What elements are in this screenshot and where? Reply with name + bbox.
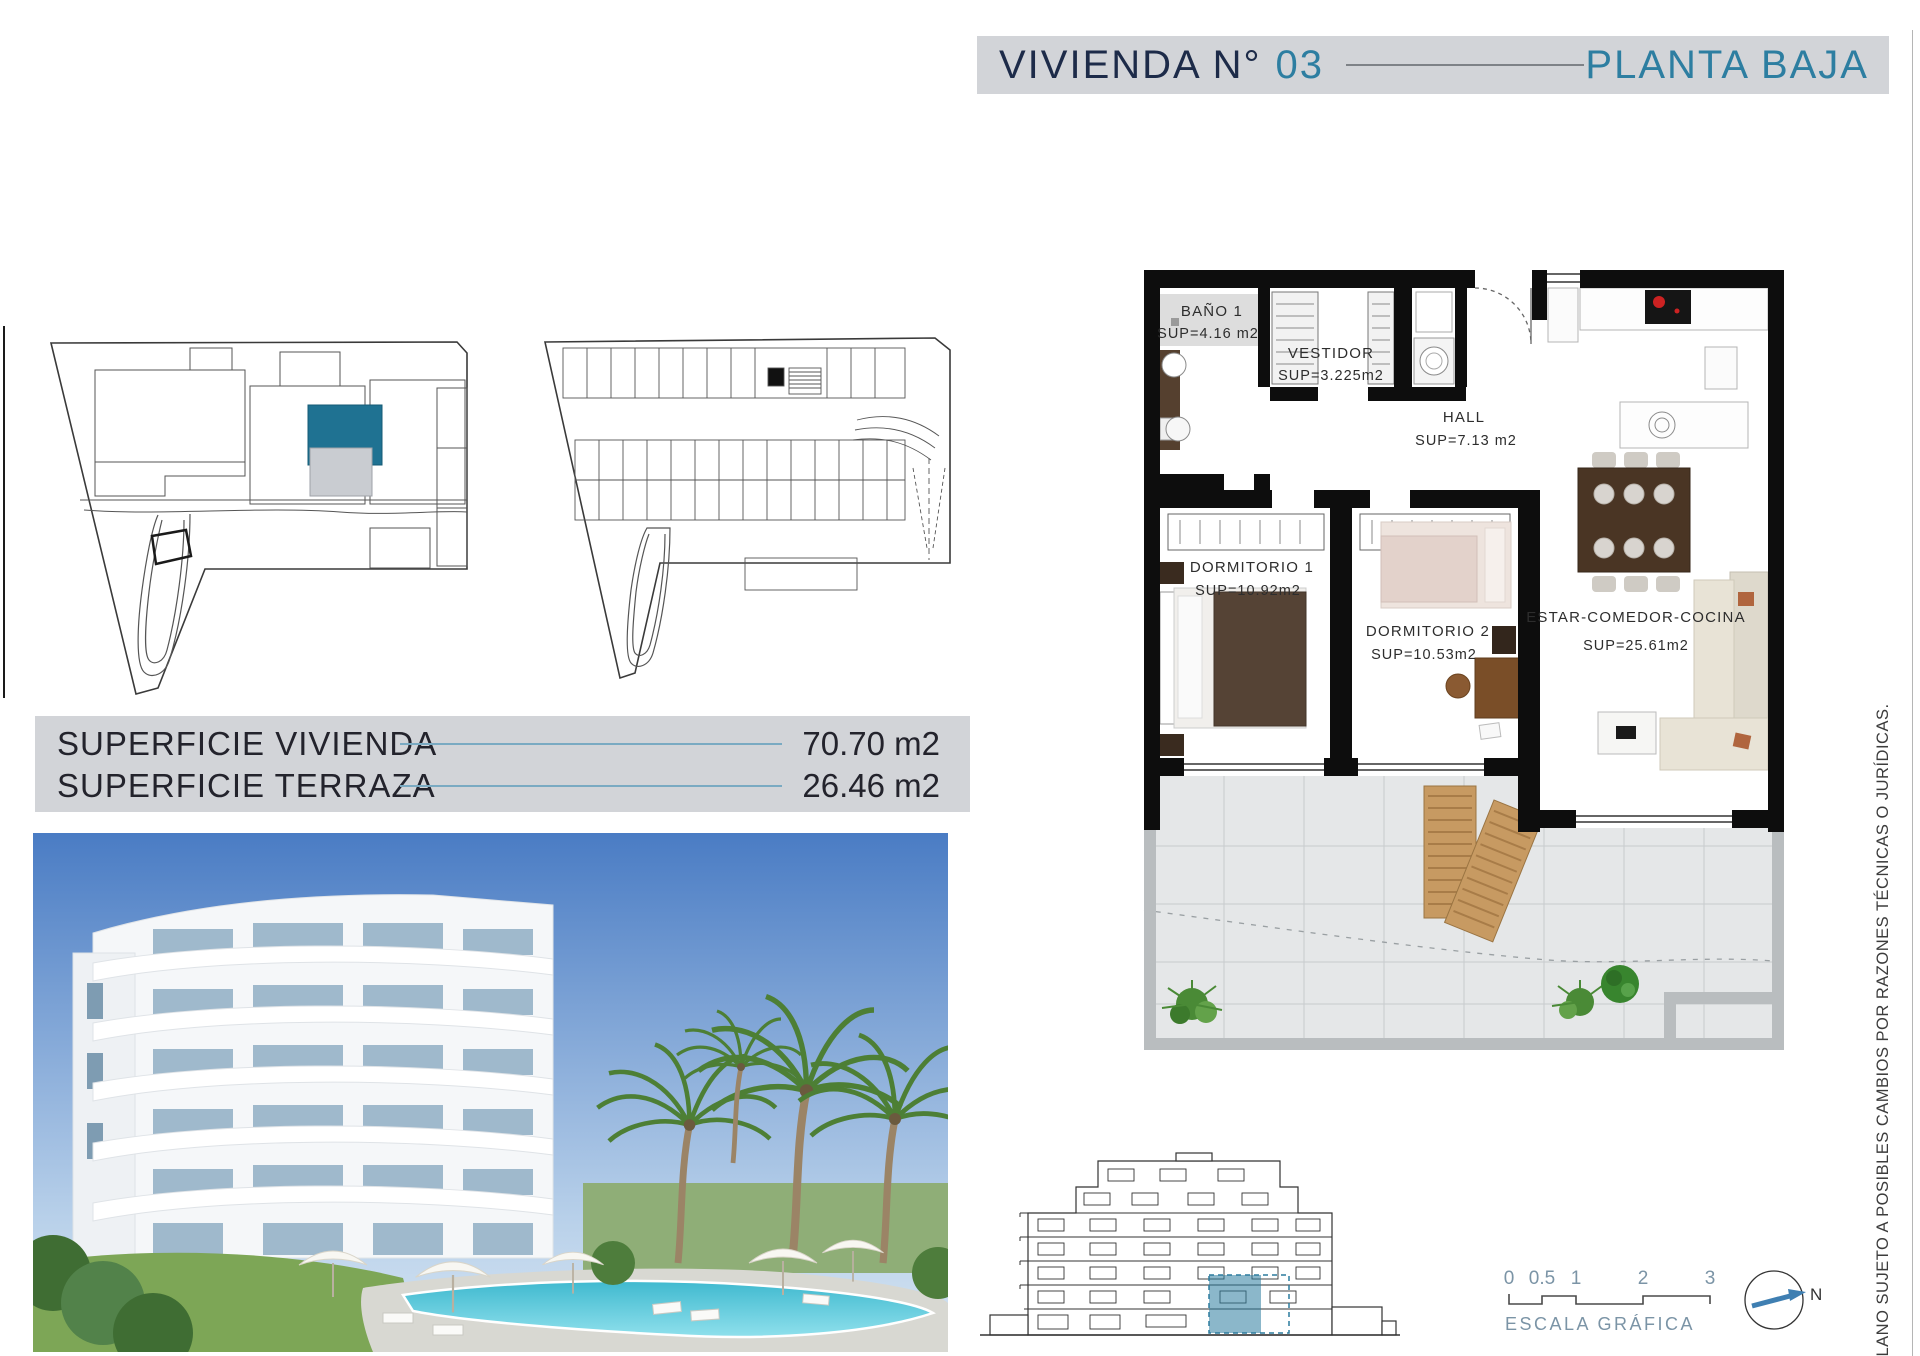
header-bar: VIVIENDA N° 03 PLANTA BAJA — [977, 36, 1889, 94]
scale-label: ESCALA GRÁFICA — [1505, 1314, 1695, 1335]
site-parking-plan — [535, 328, 955, 748]
room-sup-bano1: SUP=4.16 m2 — [1157, 326, 1259, 342]
scale-tick: 3 — [1705, 1268, 1716, 1290]
area-value: 26.46 m2 — [802, 767, 940, 805]
area-value: 70.70 m2 — [802, 725, 940, 763]
room-sup-estar: SUP=25.61m2 — [1583, 638, 1689, 654]
area-label: SUPERFICIE VIVIENDA — [57, 725, 437, 763]
room-label-dorm1: DORMITORIO 1 — [1190, 559, 1314, 576]
render-illustration — [33, 833, 948, 1352]
bedroom-1-furniture — [1160, 514, 1324, 756]
plan-sheet-page: VIVIENDA N° 03 PLANTA BAJA — [0, 0, 1920, 1356]
scale-tick: 0 — [1504, 1268, 1515, 1290]
distant-greenery — [583, 1183, 948, 1273]
page-title: VIVIENDA N° — [999, 43, 1262, 88]
room-label-hall: HALL — [1443, 409, 1485, 426]
north-label: N — [1810, 1285, 1822, 1304]
building-elevation — [980, 1145, 1400, 1356]
site-a-boundary — [51, 342, 467, 694]
scale-tick: 2 — [1638, 1268, 1649, 1290]
building-render-photo — [33, 833, 948, 1352]
scale-tick: 1 — [1571, 1268, 1582, 1290]
dining-set — [1578, 452, 1690, 592]
room-label-bano1: BAÑO 1 — [1181, 303, 1243, 320]
area-label: SUPERFICIE TERRAZA — [57, 767, 436, 805]
room-sup-hall: SUP=7.13 m2 — [1415, 433, 1517, 449]
apartment-building — [73, 895, 553, 1258]
legal-disclaimer: PLANO SUJETO A POSIBLES CAMBIOS POR RAZO… — [1874, 828, 1904, 1356]
page-edge-line-left — [3, 326, 5, 698]
room-sup-dorm1: SUP=10.92m2 — [1195, 583, 1301, 599]
apartment-floor-plan: BAÑO 1 SUP=4.16 m2 VESTIDOR SUP=3.225m2 … — [1128, 262, 1800, 1078]
site-location-plan — [40, 328, 500, 748]
unit-highlight — [1209, 1275, 1261, 1333]
north-compass: N — [1738, 1258, 1834, 1342]
header-divider — [1346, 64, 1584, 66]
site-b-boundary — [545, 338, 950, 678]
unit-number: 03 — [1276, 43, 1325, 88]
room-sup-vestidor: SUP=3.225m2 — [1278, 368, 1384, 384]
area-row-vivienda: SUPERFICIE VIVIENDA 70.70 m2 — [35, 722, 970, 766]
area-row-terraza: SUPERFICIE TERRAZA 26.46 m2 — [35, 764, 970, 808]
area-leader-line — [400, 785, 782, 787]
room-label-vestidor: VESTIDOR — [1288, 345, 1374, 362]
floor-label: PLANTA BAJA — [1585, 43, 1869, 88]
graphic-scale: 0 0.5 1 2 3 ESCALA GRÁFICA — [1505, 1268, 1735, 1348]
room-label-dorm2: DORMITORIO 2 — [1366, 623, 1490, 640]
scale-bar-graphic — [1505, 1292, 1717, 1308]
site-a-buildings — [80, 348, 467, 568]
surface-areas-block: SUPERFICIE VIVIENDA 70.70 m2 SUPERFICIE … — [35, 716, 970, 812]
site-b-pool-contour — [627, 528, 670, 666]
area-leader-line — [400, 743, 782, 745]
site-a-terrace-highlight — [310, 448, 372, 496]
scale-tick: 0.5 — [1529, 1268, 1555, 1290]
north-arrow — [1752, 1296, 1790, 1306]
site-a-pool-area — [138, 514, 191, 676]
site-b-parking — [563, 348, 945, 590]
room-label-estar: ESTAR-COMEDOR-COCINA — [1526, 609, 1746, 626]
room-sup-dorm2: SUP=10.53m2 — [1371, 647, 1477, 663]
page-edge-line-right — [1912, 30, 1913, 1356]
